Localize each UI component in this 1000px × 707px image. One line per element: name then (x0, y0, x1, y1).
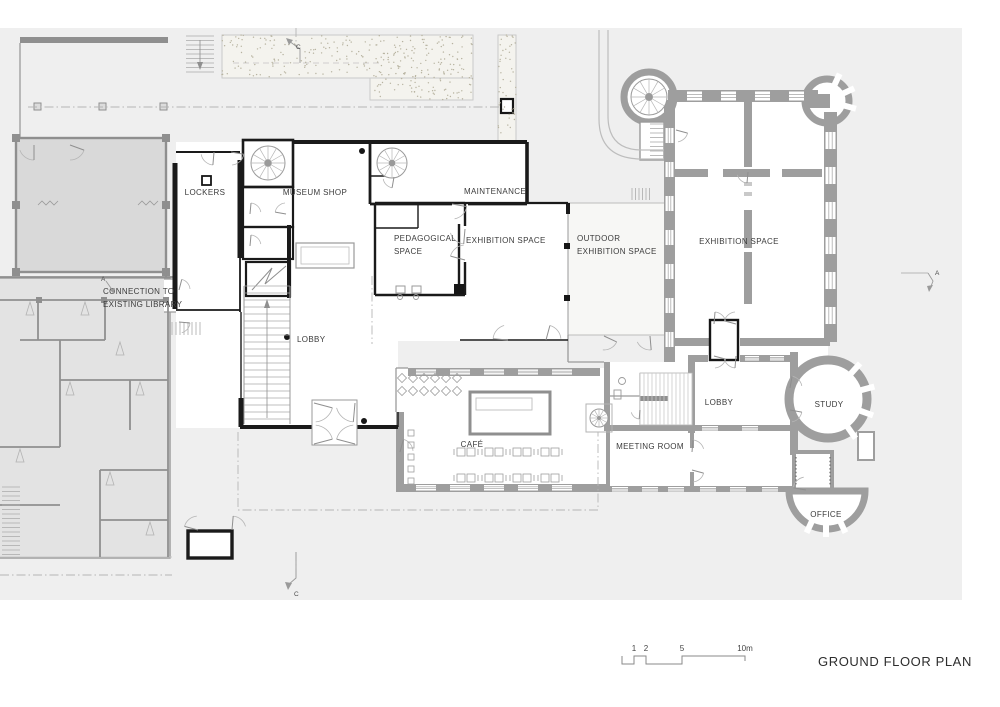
label-connection-line2: EXISTING LIBRARY (103, 300, 183, 309)
outdoor-exhibition-area (568, 203, 665, 335)
scale-bar: 1 2 5 10m (622, 644, 753, 664)
label-outdoor-line1: OUTDOOR (577, 234, 620, 243)
column-dot (361, 418, 367, 424)
library-lower-block (0, 278, 170, 558)
section-marker-a-right: A (935, 270, 940, 277)
castle-vestibule (710, 320, 738, 360)
label-meeting-room: MEETING ROOM (616, 442, 684, 451)
entrance-vestibule (312, 400, 357, 445)
scale-tick-5: 5 (680, 644, 685, 653)
label-lockers: LOCKERS (185, 188, 226, 197)
kiosk-room (188, 531, 232, 558)
label-maintenance: MAINTENANCE (464, 187, 526, 196)
label-office: OFFICE (810, 510, 841, 519)
scale-tick-10m: 10m (737, 644, 753, 653)
label-cafe: CAFÉ (461, 440, 484, 449)
label-lobby-new: LOBBY (297, 335, 326, 344)
section-marker-c-bottom: C (294, 591, 299, 598)
scale-tick-2: 2 (644, 644, 649, 653)
plan-title: GROUND FLOOR PLAN (818, 654, 972, 669)
label-exhibition-old: EXHIBITION SPACE (699, 237, 779, 246)
label-lobby-old: LOBBY (705, 398, 734, 407)
floor-plan-drawing: LOCKERS MUSEUM SHOP MAINTENANCE PEDAGOGI… (0, 0, 1000, 707)
label-study: STUDY (815, 400, 844, 409)
section-marker-c-top: C (296, 44, 301, 51)
floor-plan-page: LOCKERS MUSEUM SHOP MAINTENANCE PEDAGOGI… (0, 0, 1000, 707)
label-exhibition-new: EXHIBITION SPACE (466, 236, 546, 245)
label-pedagogical-line1: PEDAGOGICAL (394, 234, 456, 243)
section-marker-a-left: A (101, 276, 106, 283)
label-pedagogical-line2: SPACE (394, 247, 422, 256)
scale-tick-1: 1 (632, 644, 637, 653)
column-dot (359, 148, 365, 154)
label-museum-shop: MUSEUM SHOP (283, 188, 347, 197)
label-outdoor-line2: EXHIBITION SPACE (577, 247, 657, 256)
shaft-box (501, 99, 513, 113)
